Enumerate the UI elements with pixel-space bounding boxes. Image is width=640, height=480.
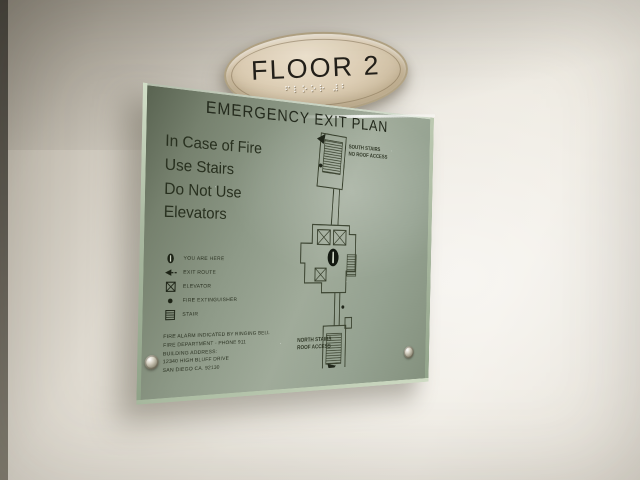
braille-dots: ⠋⠇⠕⠕⠗ ⠼⠃	[284, 83, 349, 96]
floor-plan-map: SOUTH STAIRS NO ROOF ACCESS NORTH STAIRS…	[296, 130, 414, 370]
standoff-screw-right	[404, 346, 414, 359]
legend-label: STAIR	[182, 311, 198, 318]
elevator-marker	[315, 268, 326, 281]
elevator-marker	[317, 230, 330, 245]
map-legend: YOU ARE HERE EXIT ROUTE ELEVATOR	[164, 251, 291, 322]
legend-row: EXIT ROUTE	[164, 265, 289, 279]
glass-edge-bottom	[136, 378, 428, 405]
exit-plan-glass-sign: EMERGENCY EXIT PLAN In Case of Fire Use …	[136, 83, 434, 405]
wall-photo: FLOOR 2 ⠋⠇⠕⠕⠗ ⠼⠃ EMERGENCY EXIT PLAN In …	[0, 0, 640, 480]
legend-row: STAIR	[164, 305, 290, 322]
fire-instructions: In Case of Fire Use Stairs Do Not Use El…	[164, 129, 300, 229]
fine-print-block: FIRE ALARM INDICATED BY RINGING BELL FIR…	[162, 329, 297, 376]
fire-extinguisher-marker	[319, 163, 322, 167]
floor-label: FLOOR 2	[250, 50, 381, 87]
you-are-here-marker	[327, 249, 338, 267]
you-are-here-icon	[165, 252, 179, 263]
legend-label: EXIT ROUTE	[183, 269, 216, 276]
elevator-marker	[333, 230, 346, 245]
legend-row: YOU ARE HERE	[165, 251, 290, 266]
exit-plan-sign-wrapper: EMERGENCY EXIT PLAN In Case of Fire Use …	[135, 102, 465, 392]
legend-label: FIRE EXTINGUISHER	[183, 296, 238, 303]
wall-left-edge-shadow	[0, 0, 8, 480]
north-exit-arrow	[327, 364, 336, 370]
glass-edge-left	[136, 83, 147, 405]
legend-label: YOU ARE HERE	[183, 255, 224, 262]
stair-icon	[164, 309, 178, 320]
exit-route-arrow-icon	[164, 267, 178, 278]
legend-label: ELEVATOR	[183, 283, 211, 290]
corridor-walls-upper	[331, 189, 339, 225]
elevator-icon	[164, 281, 178, 292]
glass-edge-right	[425, 118, 434, 382]
standoff-screw-left	[145, 355, 159, 370]
legend-row: ELEVATOR	[164, 279, 289, 293]
fire-extinguisher-icon	[164, 295, 178, 306]
mid-stair-block	[347, 255, 356, 276]
south-stairs-label-line2: NO ROOF ACCESS	[348, 151, 388, 161]
corridor-walls-lower	[334, 293, 340, 326]
fire-extinguisher-marker	[341, 305, 344, 309]
